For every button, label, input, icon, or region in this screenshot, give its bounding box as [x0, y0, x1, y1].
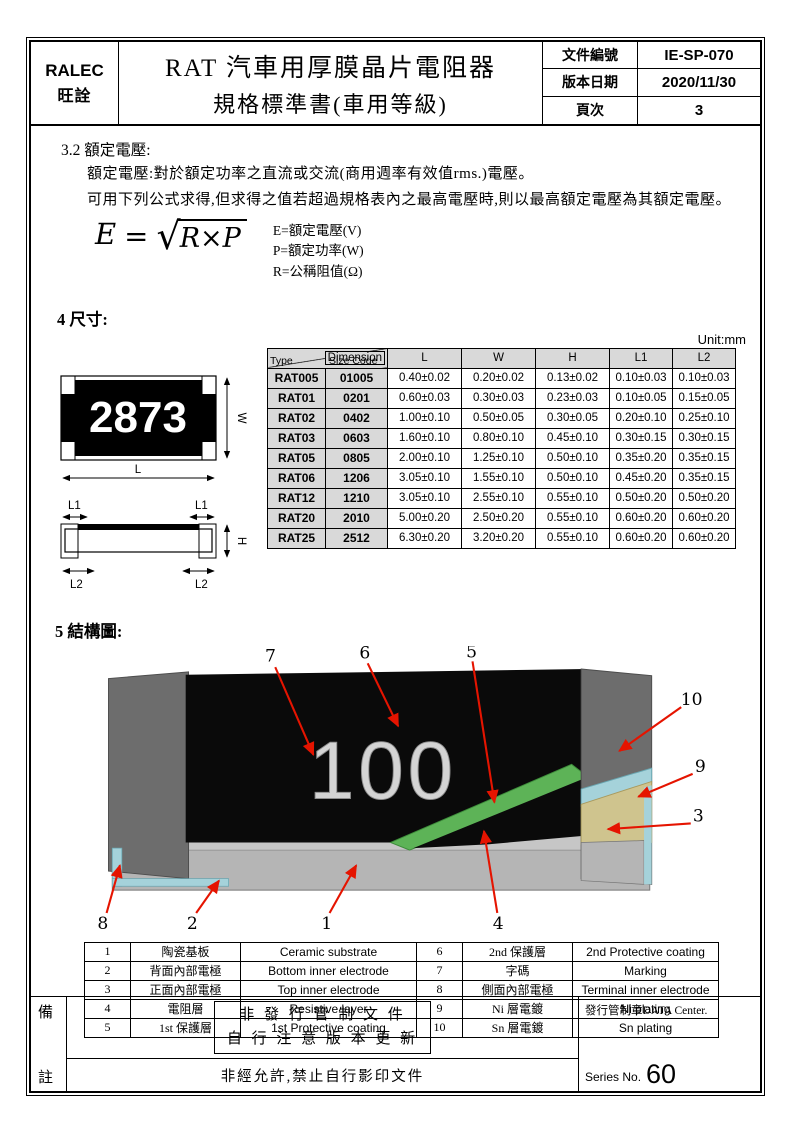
document-body: 3.2 額定電壓: 額定電壓:對於額定功率之直流或交流(商用週率有效值rms.)…	[31, 126, 760, 996]
remarks-label-top: 備	[38, 1001, 66, 1022]
table-row: RAT252512 6.30±0.203.20±0.200.55±0.100.6…	[268, 528, 736, 548]
page-header: RALEC 旺詮 RAT 汽車用厚膜晶片電阻器 規格標準書(車用等級) 文件編號…	[31, 42, 760, 126]
footer-right-column: 發行管制章DATA Center. Series No. 60	[578, 997, 760, 1091]
company-name-en: RALEC	[45, 61, 104, 81]
formula-equals: =	[124, 221, 148, 253]
section-3-2-title: 額定電壓:	[84, 142, 150, 159]
corner-sizecode-label: Size Code	[329, 355, 377, 367]
bottom-inner-electrode-shape	[112, 878, 228, 886]
chip-side-view-body	[65, 529, 212, 552]
control-stamp-row: 非 發 行 管 制 文 件 自 行 注 意 版 本 更 新	[67, 997, 578, 1059]
section-4-number: 4	[57, 310, 65, 329]
table-row: 2背面內部電極Bottom inner electrode 7字碼Marking	[85, 961, 719, 980]
left-terminal-shape	[108, 672, 188, 879]
remarks-label-column: 備 註	[31, 997, 67, 1091]
document-title-line1: RAT 汽車用厚膜晶片電阻器	[165, 48, 496, 84]
dim-H-label: H	[235, 537, 247, 545]
callout-number-4: 4	[492, 914, 503, 934]
page-no-label: 頁次	[543, 97, 638, 124]
corner-type-label: Type	[270, 355, 293, 367]
version-date-label: 版本日期	[543, 69, 638, 96]
table-row: RAT020402 1.00±0.100.50±0.050.30±0.050.2…	[268, 408, 736, 428]
document-meta-table: 文件編號 IE-SP-070 版本日期 2020/11/30 頁次 3	[543, 42, 760, 124]
page-no-value: 3	[638, 97, 760, 124]
chip-marking-example: 2873	[89, 393, 187, 442]
col-header-L: L	[388, 348, 462, 368]
table-row: RAT010201 0.60±0.030.30±0.030.23±0.030.1…	[268, 388, 736, 408]
dim-L-label: L	[135, 464, 142, 476]
remarks-label-bottom: 註	[38, 1066, 66, 1087]
structure-3d-diagram: 100 7 6 5 10 9 3 8 2 1 4	[78, 646, 726, 936]
section-3-2-number: 3.2	[61, 142, 80, 159]
table-row: RAT061206 3.05±0.101.55±0.100.50±0.100.4…	[268, 468, 736, 488]
dim-L2-label-left: L2	[70, 579, 83, 591]
dim-L1-label-left: L1	[68, 500, 81, 512]
footer-center-column: 非 發 行 管 制 文 件 自 行 注 意 版 本 更 新 非經允許,禁止自行影…	[67, 997, 578, 1091]
rated-voltage-line2: 可用下列公式求得,但求得之值若超過規格表內之最高電壓時,則以最高額定電壓為其額定…	[87, 189, 748, 212]
col-header-L1: L1	[610, 348, 673, 368]
section-5-heading: 5 結構圖:	[55, 618, 748, 642]
table-row: RAT121210 3.05±0.102.55±0.100.55±0.100.5…	[268, 488, 736, 508]
series-number: 60	[646, 1063, 676, 1086]
rated-voltage-line1: 額定電壓:對於額定功率之直流或交流(商用週率有效值rms.)電壓。	[87, 163, 748, 186]
dim-L2-label-right: L2	[195, 579, 208, 591]
section-rated-voltage: 3.2 額定電壓: 額定電壓:對於額定功率之直流或交流(商用週率有效值rms.)…	[55, 138, 748, 282]
legend-E: E=額定電壓(V)	[273, 221, 364, 241]
callout-number-1: 1	[321, 914, 332, 934]
version-date-value: 2020/11/30	[638, 69, 760, 96]
table-row: RAT202010 5.00±0.202.50±0.200.55±0.100.6…	[268, 508, 736, 528]
formula-radicand: R×P	[178, 219, 247, 254]
uncontrolled-document-stamp: 非 發 行 管 制 文 件 自 行 注 意 版 本 更 新	[214, 1001, 431, 1054]
doc-no-value: IE-SP-070	[638, 42, 760, 69]
structure-marking-text: 100	[308, 725, 456, 816]
page-footer: 備 註 非 發 行 管 制 文 件 自 行 注 意 版 本 更 新 非經允許,禁…	[31, 996, 760, 1091]
company-name-cn: 旺詮	[57, 82, 91, 106]
legend-P: P=額定功率(W)	[273, 241, 364, 261]
callout-number-10: 10	[680, 690, 702, 710]
series-number-block: Series No. 60	[585, 1063, 754, 1086]
rated-voltage-formula: E = √ R×P	[95, 219, 247, 254]
stamp-line1: 非 發 行 管 制 文 件	[227, 1004, 418, 1027]
callout-number-5: 5	[466, 646, 477, 663]
sn-plating-shape	[644, 785, 652, 884]
formula-block: E = √ R×P E=額定電壓(V) P=額定功率(W) R=公稱阻值(Ω)	[95, 219, 748, 282]
dimensions-table-corner: Dimension Type Size Code	[268, 348, 388, 368]
table-row: RAT00501005 0.40±0.020.20±0.020.13±0.020…	[268, 368, 736, 388]
section-5-number: 5	[55, 622, 63, 641]
callout-number-3: 3	[692, 806, 703, 826]
dim-L1-label-right: L1	[195, 500, 208, 512]
section-3-2-heading: 3.2 額定電壓:	[61, 138, 748, 160]
col-header-L2: L2	[673, 348, 736, 368]
section-5-title: 結構圖:	[67, 622, 122, 641]
callout-number-2: 2	[186, 914, 197, 934]
issuing-control-stamp: 發行管制章DATA Center.	[585, 1002, 754, 1018]
chip-dimension-drawing: 2873 W L L1 L1 H	[55, 370, 261, 598]
copy-notice: 非經允許,禁止自行影印文件	[67, 1059, 578, 1091]
section-4-title: 尺寸:	[69, 310, 108, 329]
stamp-line2: 自 行 注 意 版 本 更 新	[227, 1028, 418, 1051]
legend-R: R=公稱阻值(Ω)	[273, 262, 364, 282]
dimensions-block: 2873 W L L1 L1 H	[55, 348, 748, 598]
document-title-line2: 規格標準書(車用等級)	[213, 87, 448, 119]
formula-legend: E=額定電壓(V) P=額定功率(W) R=公稱阻值(Ω)	[273, 219, 364, 282]
company-logo-block: RALEC 旺詮	[31, 42, 119, 124]
spec-sheet-page: RALEC 旺詮 RAT 汽車用厚膜晶片電阻器 規格標準書(車用等級) 文件編號…	[29, 40, 762, 1093]
callout-number-6: 6	[359, 646, 370, 664]
chip-side-view: L1 L1 H L2 L2	[61, 500, 247, 591]
section-4-heading: 4 尺寸:	[57, 306, 748, 330]
callout-number-7: 7	[265, 646, 276, 666]
formula-lhs: E	[95, 219, 116, 251]
col-header-H: H	[536, 348, 610, 368]
dimensions-table: Dimension Type Size Code L W H L1 L2 RAT…	[267, 348, 736, 549]
table-row: 1陶瓷基板Ceramic substrate 62nd 保護層2nd Prote…	[85, 942, 719, 961]
table-row: RAT030603 1.60±0.100.80±0.100.45±0.100.3…	[268, 428, 736, 448]
col-header-W: W	[462, 348, 536, 368]
unit-label: Unit:mm	[55, 332, 746, 347]
series-label: Series No.	[585, 1070, 641, 1086]
doc-no-label: 文件編號	[543, 42, 638, 69]
callout-number-9: 9	[694, 757, 705, 777]
document-title-block: RAT 汽車用厚膜晶片電阻器 規格標準書(車用等級)	[119, 42, 543, 124]
table-row: RAT050805 2.00±0.101.25±0.100.50±0.100.3…	[268, 448, 736, 468]
callout-number-8: 8	[97, 914, 108, 934]
dim-W-label: W	[235, 412, 247, 423]
